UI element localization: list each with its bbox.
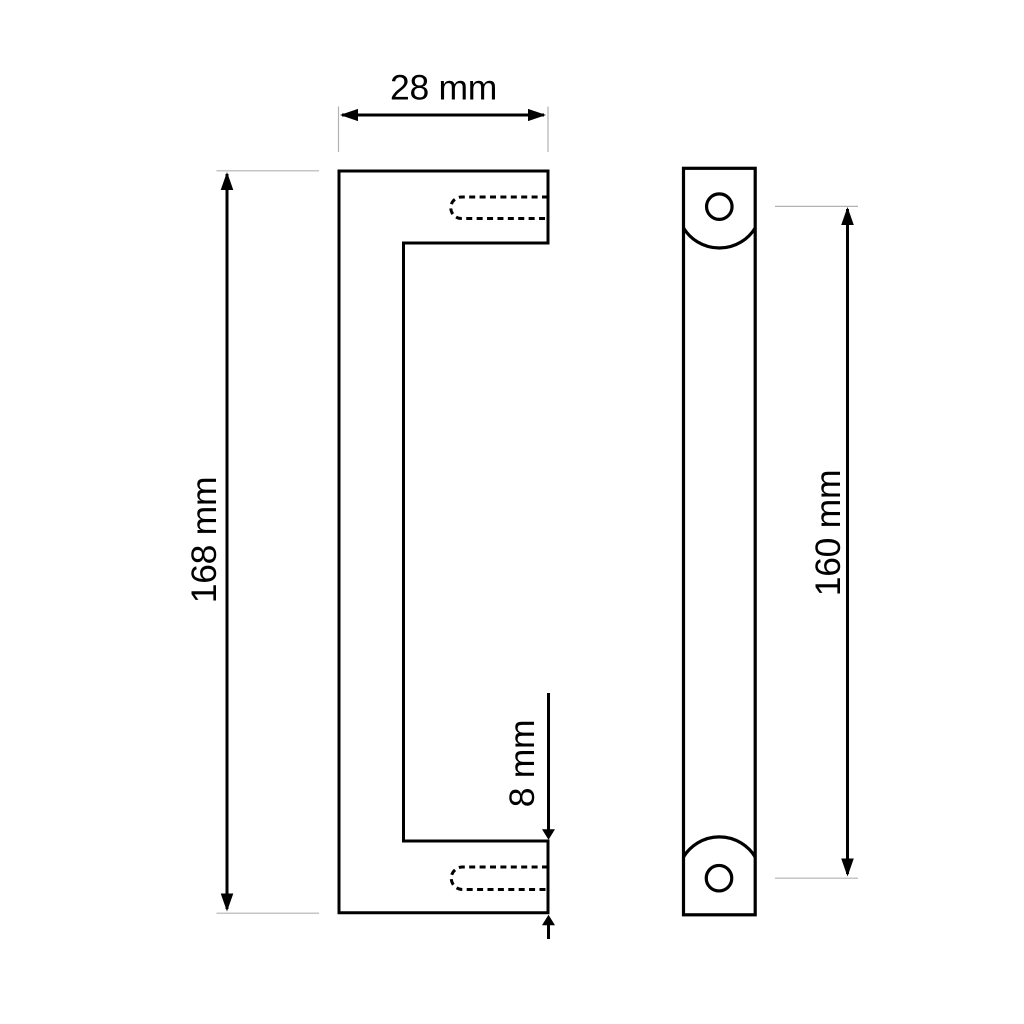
svg-text:168 mm: 168 mm: [184, 477, 224, 603]
svg-text:160 mm: 160 mm: [808, 470, 848, 596]
svg-text:8 mm: 8 mm: [502, 720, 542, 808]
svg-text:28 mm: 28 mm: [390, 68, 497, 108]
